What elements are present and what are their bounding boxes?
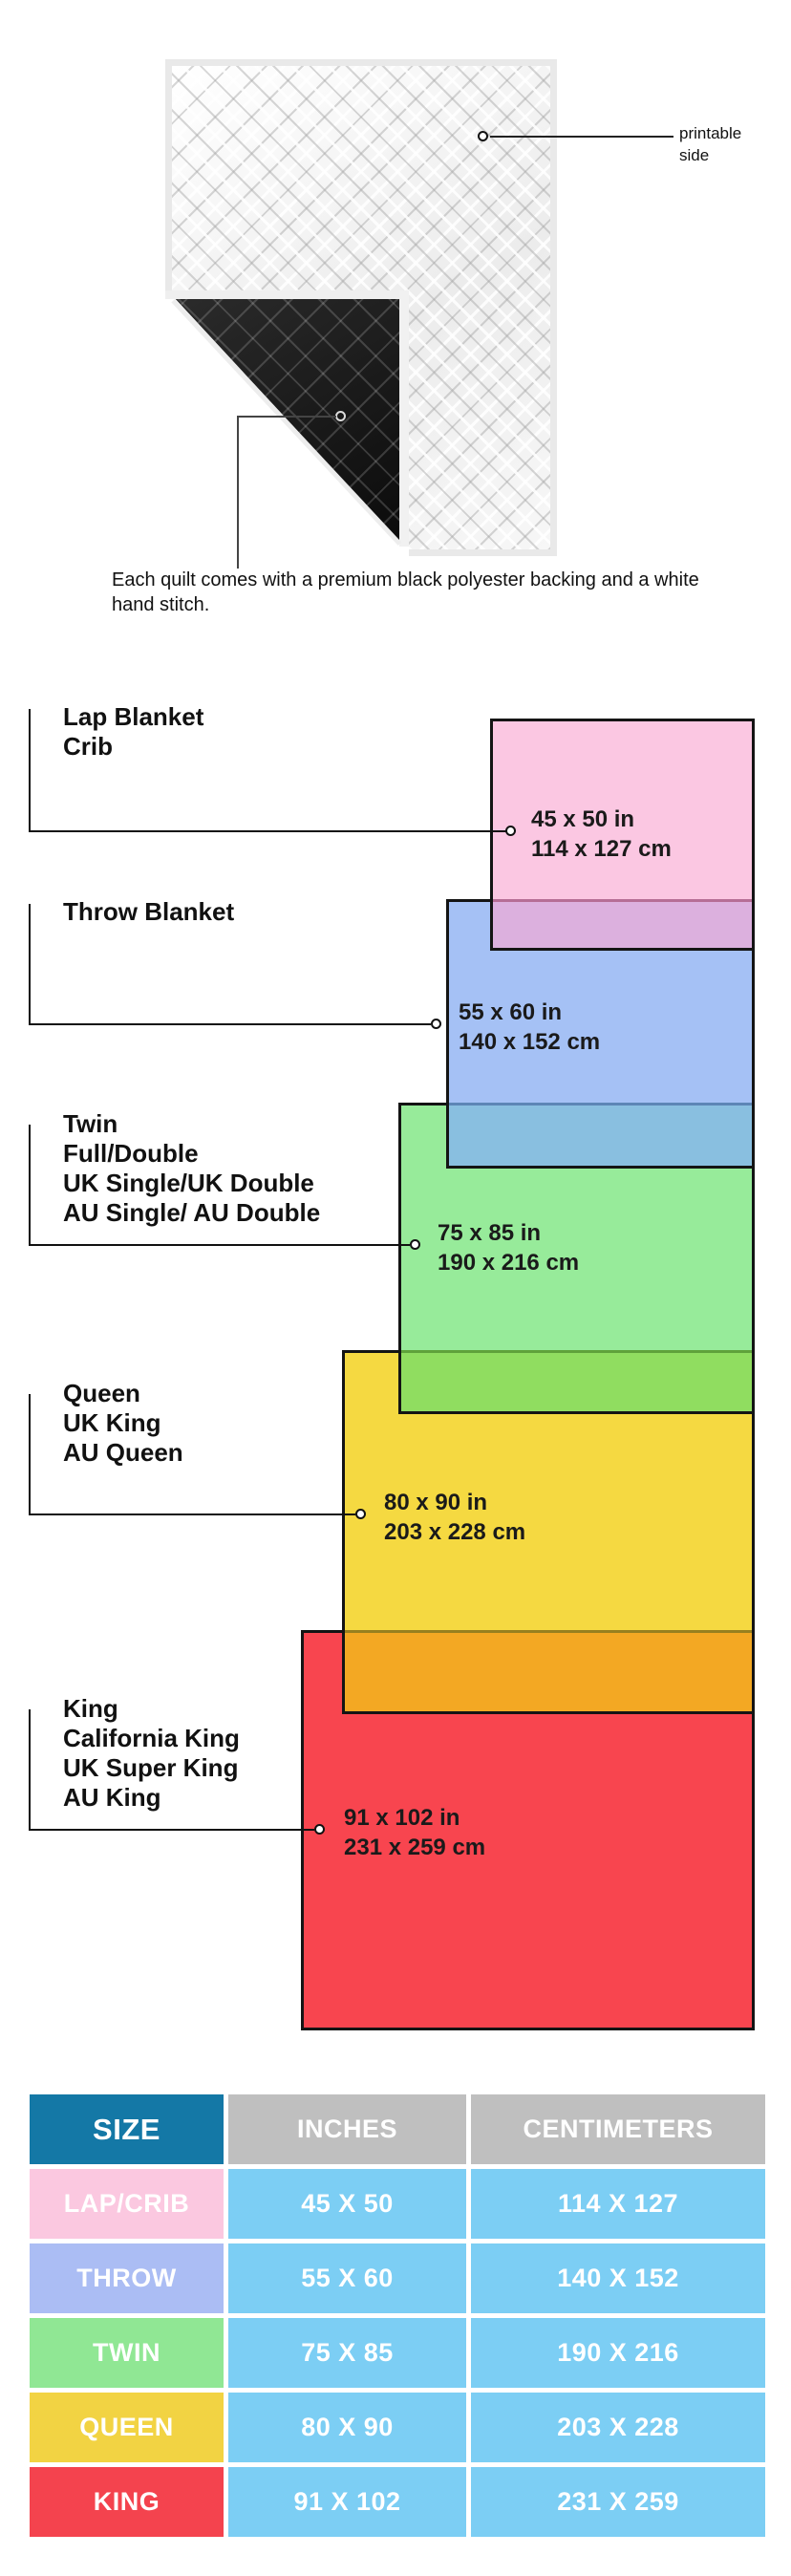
backing-caption: Each quilt comes with a premium black po… <box>112 568 709 617</box>
queen-dimensions: 80 x 90 in 203 x 228 cm <box>384 1488 525 1547</box>
size-name-line: Queen <box>63 1379 183 1408</box>
printable-side-label: printable side <box>679 122 765 166</box>
lap-bracket-v <box>29 709 31 832</box>
table-cell-inches: 45 X 50 <box>228 2169 466 2239</box>
king-dimensions: 91 x 102 in 231 x 259 cm <box>344 1803 485 1862</box>
table-row-label: TWIN <box>30 2318 224 2388</box>
throw-dimensions: 55 x 60 in 140 x 152 cm <box>459 998 600 1057</box>
queen-king-overlap <box>345 1630 752 1711</box>
size-table: SIZE INCHES CENTIMETERS LAP/CRIB 45 X 50… <box>30 2094 765 2537</box>
table-row-label: LAP/CRIB <box>30 2169 224 2239</box>
table-cell-cm: 190 X 216 <box>471 2318 765 2388</box>
lap-marker-icon <box>505 826 516 836</box>
table-cell-cm: 203 X 228 <box>471 2393 765 2462</box>
dim-cm: 114 x 127 cm <box>531 834 672 864</box>
twin-marker-icon <box>410 1239 420 1250</box>
king-size-names: King California King UK Super King AU Ki… <box>63 1694 240 1813</box>
table-cell-cm: 140 X 152 <box>471 2243 765 2313</box>
table-cell-cm: 231 X 259 <box>471 2467 765 2537</box>
table-row-label: QUEEN <box>30 2393 224 2462</box>
quilt-fold-binding-right <box>399 290 409 547</box>
dim-inches: 80 x 90 in <box>384 1488 525 1517</box>
dim-inches: 45 x 50 in <box>531 805 672 834</box>
table-header-inches: INCHES <box>228 2094 466 2164</box>
table-row-label: THROW <box>30 2243 224 2313</box>
twin-bracket-h <box>29 1244 410 1246</box>
backing-marker-icon <box>335 411 346 421</box>
size-name-line: Crib <box>63 732 203 762</box>
quilt-illustration <box>165 59 557 556</box>
table-header-size: SIZE <box>30 2094 224 2164</box>
dim-inches: 91 x 102 in <box>344 1803 485 1833</box>
backing-callout-line-v <box>237 416 239 569</box>
throw-bracket-v <box>29 904 31 1025</box>
quilt-fold-binding-top <box>165 290 409 299</box>
queen-bracket-v <box>29 1394 31 1515</box>
lap-throw-overlap <box>493 899 752 948</box>
throw-bracket-h <box>29 1023 431 1025</box>
throw-twin-overlap <box>449 1103 752 1166</box>
size-name-line: Twin <box>63 1109 320 1139</box>
throw-marker-icon <box>431 1019 441 1029</box>
size-name-line: Full/Double <box>63 1139 320 1169</box>
table-row-label: KING <box>30 2467 224 2537</box>
king-bracket-h <box>29 1829 314 1831</box>
queen-bracket-h <box>29 1513 355 1515</box>
table-cell-inches: 55 X 60 <box>228 2243 466 2313</box>
dim-cm: 140 x 152 cm <box>459 1027 600 1057</box>
size-name-line: AU King <box>63 1783 240 1813</box>
queen-size-names: Queen UK King AU Queen <box>63 1379 183 1468</box>
size-name-line: UK King <box>63 1408 183 1438</box>
twin-queen-overlap <box>401 1350 752 1411</box>
dim-cm: 203 x 228 cm <box>384 1517 525 1547</box>
dim-cm: 190 x 216 cm <box>438 1248 579 1277</box>
dim-inches: 75 x 85 in <box>438 1218 579 1248</box>
twin-size-names: Twin Full/Double UK Single/UK Double AU … <box>63 1109 320 1228</box>
king-marker-icon <box>314 1824 325 1835</box>
twin-bracket-v <box>29 1125 31 1246</box>
size-name-line: UK Super King <box>63 1753 240 1783</box>
table-cell-inches: 91 X 102 <box>228 2467 466 2537</box>
queen-marker-icon <box>355 1509 366 1519</box>
king-bracket-v <box>29 1709 31 1831</box>
table-cell-inches: 80 X 90 <box>228 2393 466 2462</box>
throw-size-names: Throw Blanket <box>63 897 234 927</box>
size-name-line: King <box>63 1694 240 1724</box>
size-name-line: AU Queen <box>63 1438 183 1468</box>
lap-bracket-h <box>29 830 506 832</box>
printable-side-callout-line <box>490 136 673 138</box>
printable-side-marker-icon <box>478 131 488 141</box>
table-cell-cm: 114 X 127 <box>471 2169 765 2239</box>
size-name-line: Lap Blanket <box>63 702 203 732</box>
table-cell-inches: 75 X 85 <box>228 2318 466 2388</box>
size-name-line: AU Single/ AU Double <box>63 1198 320 1228</box>
lap-size-names: Lap Blanket Crib <box>63 702 203 762</box>
table-header-centimeters: CENTIMETERS <box>471 2094 765 2164</box>
dim-inches: 55 x 60 in <box>459 998 600 1027</box>
size-name-line: Throw Blanket <box>63 897 234 927</box>
size-name-line: UK Single/UK Double <box>63 1169 320 1198</box>
quilt-size-infographic: printable side Each quilt comes with a p… <box>0 0 791 2576</box>
twin-dimensions: 75 x 85 in 190 x 216 cm <box>438 1218 579 1277</box>
backing-callout-line-h <box>237 416 336 418</box>
dim-cm: 231 x 259 cm <box>344 1833 485 1862</box>
size-name-line: California King <box>63 1724 240 1753</box>
lap-dimensions: 45 x 50 in 114 x 127 cm <box>531 805 672 864</box>
